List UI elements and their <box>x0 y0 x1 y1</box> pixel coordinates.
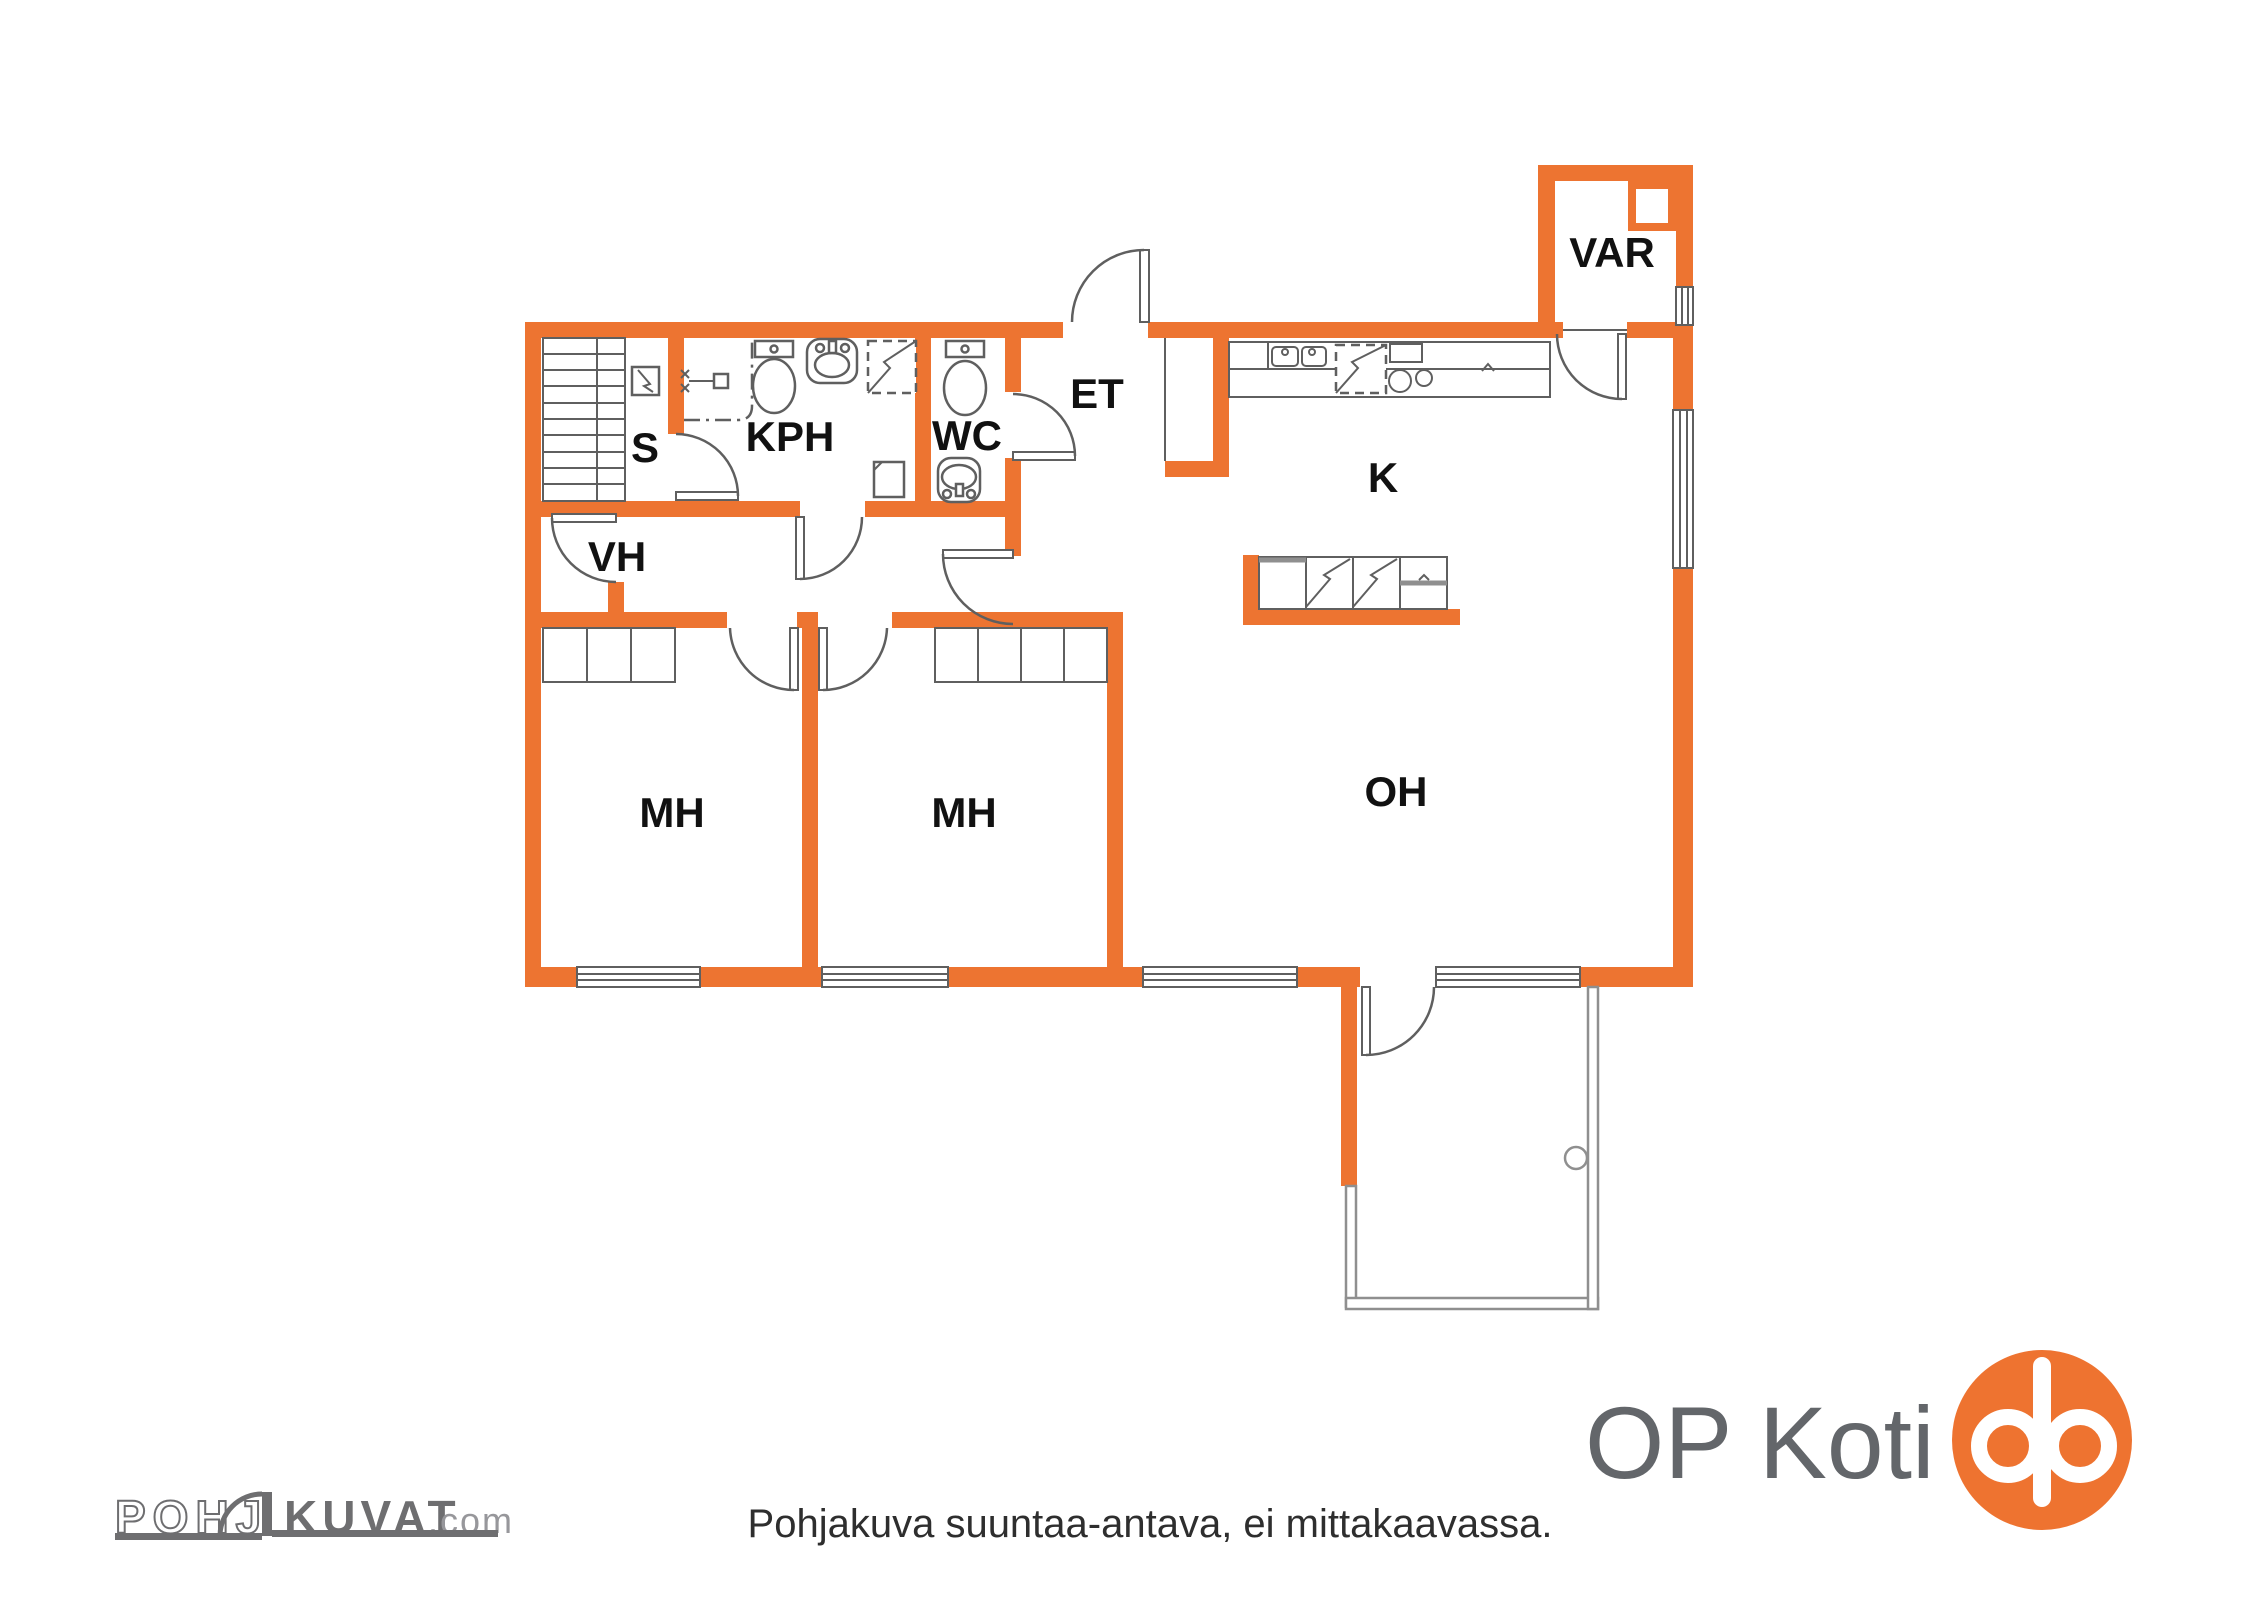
room-label-bedroom1: MH <box>639 789 704 836</box>
room-label-kitchen: K <box>1368 454 1398 501</box>
windows <box>577 287 1693 987</box>
wall-top-b <box>1148 322 1563 338</box>
wall-right-lower <box>1673 568 1693 987</box>
pohjakuvat-baseline-left <box>115 1533 262 1540</box>
terrace <box>1346 987 1598 1309</box>
terrace-wall-right <box>1588 987 1598 1309</box>
kitchen-back-door <box>1557 334 1626 399</box>
sink-icon-wc <box>938 458 980 502</box>
terrace-door <box>1362 987 1434 1055</box>
inner-walls <box>525 338 1460 1186</box>
kitchen-counter <box>1229 342 1550 397</box>
bath-wc-wall <box>915 338 931 501</box>
terrace-door-handle <box>1565 1147 1587 1169</box>
wardrobe-bedroom1 <box>543 628 675 682</box>
toilet-icon-kph <box>753 341 795 413</box>
wall-bottom-3 <box>948 967 1143 987</box>
wall-bottom-2 <box>700 967 822 987</box>
op-koti-wordmark: OP Koti <box>1585 1386 1935 1500</box>
disclaimer-text: Pohjakuva suuntaa-antava, ei mittakaavas… <box>748 1502 1553 1546</box>
window-kitchen-right <box>1673 410 1693 568</box>
entry-cupboard-right-wall <box>1213 338 1229 477</box>
bathroom-door <box>796 517 862 579</box>
floorplan-svg: S KPH WC ET VH K MH MH OH VAR POHJ KUVAT… <box>0 0 2262 1600</box>
entry-exterior-door <box>1072 250 1149 322</box>
pohjakuvat-baseline-right <box>272 1530 498 1537</box>
stairs <box>543 338 625 501</box>
room-label-storage: VAR <box>1569 229 1655 276</box>
strip-bottom-wall-2 <box>865 501 1021 517</box>
var-wall-right-upper <box>1676 165 1693 287</box>
dishwasher-icon <box>1336 345 1386 393</box>
wc-entry-wall-upper <box>1005 338 1021 392</box>
op-koti-logo: OP Koti <box>1585 1350 2132 1530</box>
room-label-living: OH <box>1365 768 1428 815</box>
wardrobe-bedroom2 <box>935 628 1107 682</box>
bedroom2-door <box>819 628 887 690</box>
var-wall-top <box>1538 165 1693 181</box>
bedrooms-center-wall <box>802 612 818 967</box>
window-bedroom1 <box>577 967 700 987</box>
wall-bottom-5 <box>1580 967 1693 987</box>
sauna-heater-icon <box>632 367 659 395</box>
bedroom1-door <box>730 628 798 690</box>
island-appliance-zigzag-2 <box>1353 559 1397 607</box>
terrace-wall-bottom <box>1346 1298 1598 1309</box>
room-label-entry: ET <box>1070 370 1124 417</box>
window-living-left <box>1143 967 1297 987</box>
window-var <box>1676 287 1693 325</box>
sink-icon-kph <box>807 339 857 383</box>
closet-right-wall <box>608 582 624 612</box>
wc-door <box>1013 394 1075 460</box>
room-label-closet: VH <box>588 533 646 580</box>
footer: POHJ KUVAT .com Pohjakuva suuntaa-antava… <box>115 1350 2132 1546</box>
terrace-wall-orange <box>1341 987 1357 1186</box>
room-label-bedroom2: MH <box>931 789 996 836</box>
page: S KPH WC ET VH K MH MH OH VAR POHJ KUVAT… <box>0 0 2262 1600</box>
op-logo-icon <box>1952 1350 2132 1530</box>
var-corner-notch <box>1636 189 1668 223</box>
toilet-icon-wc <box>944 341 986 415</box>
entry-cupboard-bottom-wall <box>1165 461 1229 477</box>
bedroom2-living-wall <box>1107 612 1123 967</box>
bathroom-cabinet <box>874 462 904 497</box>
washing-machine-icon <box>868 341 916 393</box>
terrace-wall-left <box>1346 1186 1356 1307</box>
pohjakuvat-logo: POHJ KUVAT .com <box>115 1491 514 1543</box>
island-appliance-zigzag-1 <box>1306 559 1350 607</box>
bedroom2-top-wall <box>892 612 1123 628</box>
island-wall-horizontal <box>1243 609 1460 625</box>
wall-left <box>525 322 541 987</box>
shower-mixer-icon <box>681 370 728 392</box>
room-label-wc: WC <box>932 412 1002 459</box>
wall-bottom-4 <box>1297 967 1360 987</box>
window-living-right <box>1436 967 1580 987</box>
bedroom1-top-wall-a <box>541 612 727 628</box>
wc-entry-wall-lower <box>1005 458 1021 501</box>
window-bedroom2 <box>822 967 948 987</box>
room-label-bathroom: KPH <box>746 413 835 460</box>
wall-bottom-1 <box>525 967 577 987</box>
wall-right-upper <box>1673 332 1693 410</box>
var-wall-right-lower <box>1676 325 1693 342</box>
sauna-door <box>676 434 738 500</box>
room-label-sauna: S <box>631 424 659 471</box>
wall-top-a <box>525 322 1063 338</box>
kitchen-sink-icon <box>1272 347 1326 366</box>
var-wall-left <box>1538 165 1555 330</box>
kitchen-island <box>1259 557 1447 609</box>
